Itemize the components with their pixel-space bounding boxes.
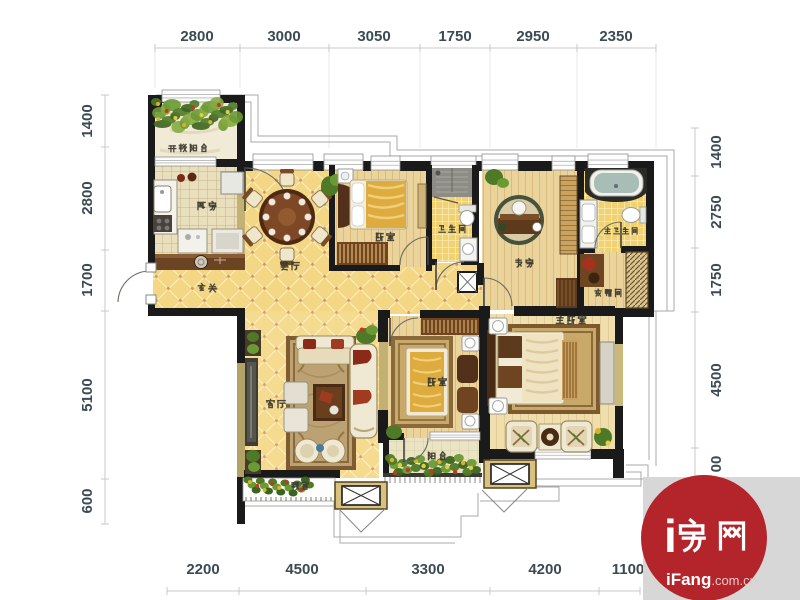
svg-text:2200: 2200 [186,561,219,578]
svg-text:i: i [664,510,677,562]
svg-text:1100: 1100 [612,561,645,578]
svg-text:2800: 2800 [180,28,213,45]
svg-text:1400: 1400 [708,135,725,168]
svg-text:1750: 1750 [708,263,725,296]
svg-text:600: 600 [79,488,96,513]
svg-text:1400: 1400 [79,104,96,137]
svg-text:4500: 4500 [708,363,725,396]
svg-text:5100: 5100 [79,378,96,411]
svg-text:1750: 1750 [438,28,471,45]
svg-text:1700: 1700 [79,263,96,296]
svg-text:4200: 4200 [528,561,561,578]
svg-text:3000: 3000 [267,28,300,45]
svg-text:2750: 2750 [708,195,725,228]
svg-text:00: 00 [708,456,725,473]
svg-text:4500: 4500 [285,561,318,578]
svg-text:2950: 2950 [516,28,549,45]
svg-text:iFang.com.cn: iFang.com.cn [666,570,757,589]
svg-text:3300: 3300 [411,561,444,578]
svg-text:2800: 2800 [79,181,96,214]
svg-text:3050: 3050 [357,28,390,45]
svg-text:2350: 2350 [599,28,632,45]
